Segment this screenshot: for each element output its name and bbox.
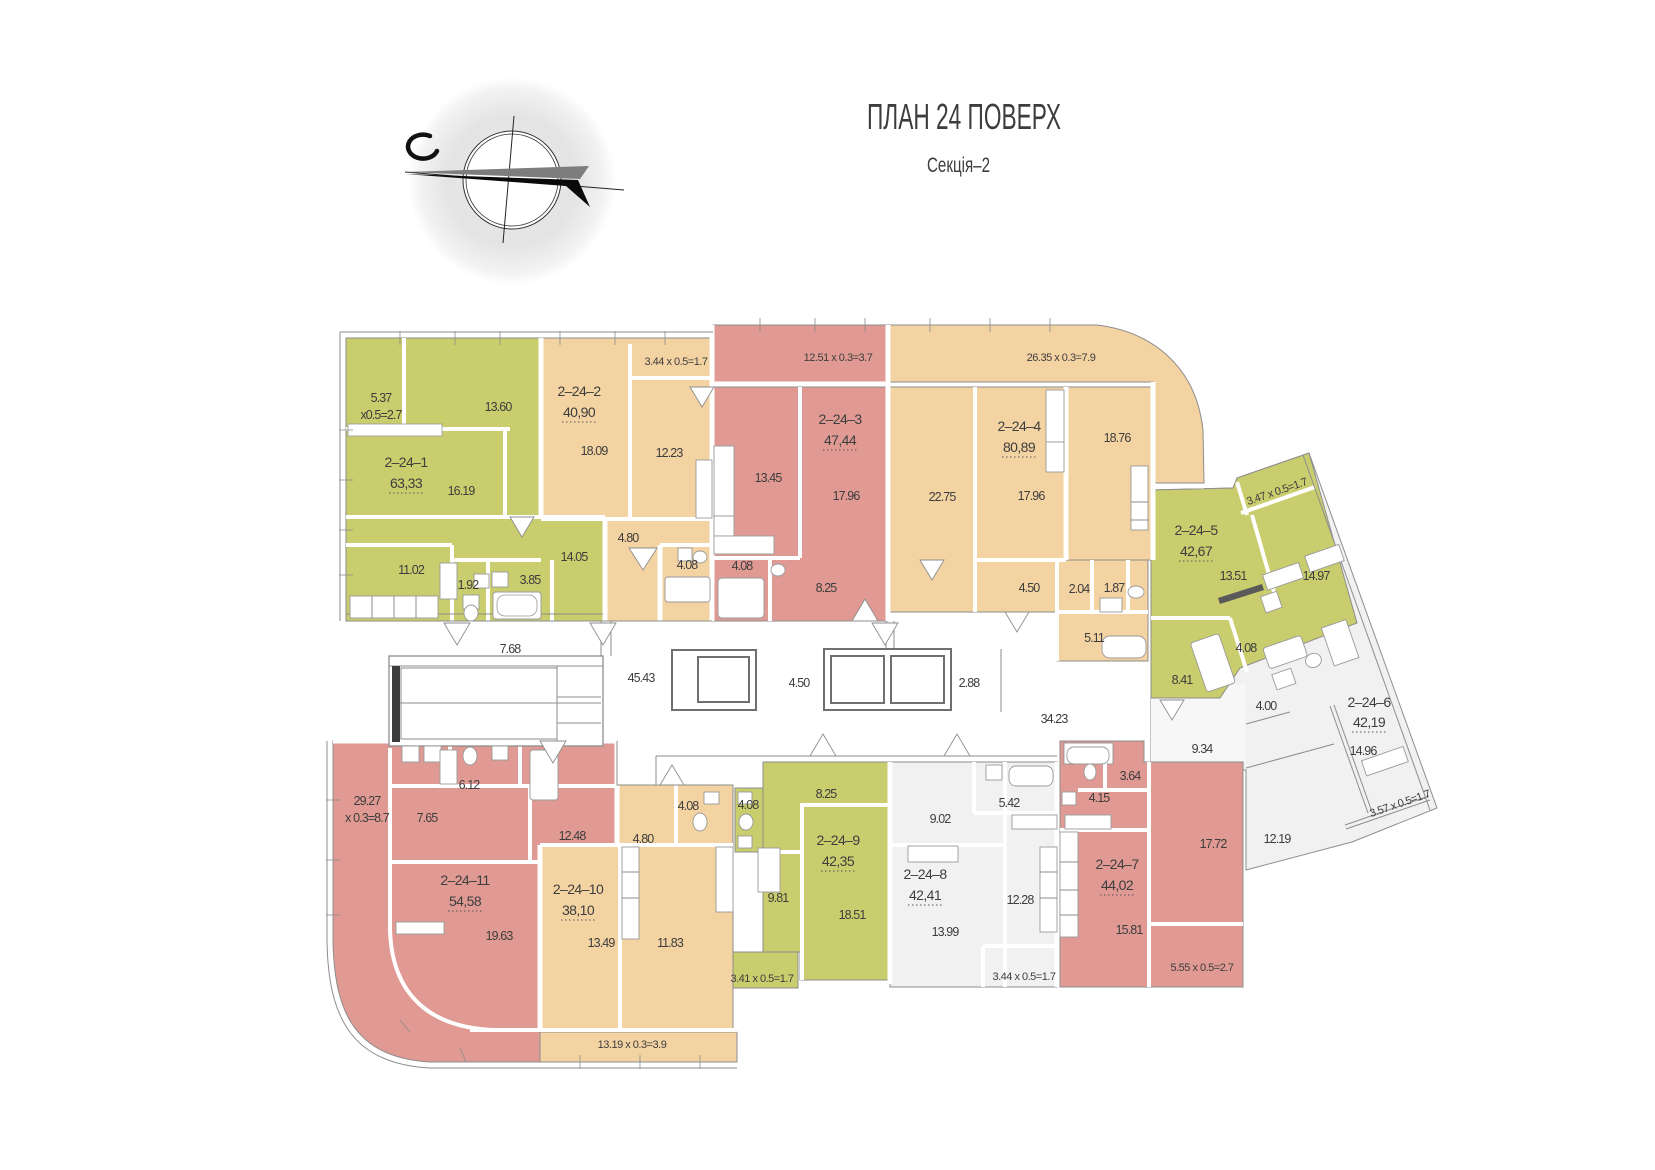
svg-text:9.81: 9.81 <box>768 891 790 905</box>
svg-text:18.51: 18.51 <box>839 908 867 922</box>
svg-text:17.72: 17.72 <box>1200 837 1228 851</box>
svg-text:2–24–8: 2–24–8 <box>903 866 947 882</box>
svg-text:х0.5=2.7: х0.5=2.7 <box>360 408 402 422</box>
svg-text:2.88: 2.88 <box>959 676 981 690</box>
svg-text:42,41: 42,41 <box>909 887 942 903</box>
svg-text:2–24–7: 2–24–7 <box>1095 856 1139 872</box>
svg-text:9.34: 9.34 <box>1192 742 1214 756</box>
svg-text:2–24–2: 2–24–2 <box>557 383 601 399</box>
svg-text:Секція–2: Секція–2 <box>927 154 990 177</box>
svg-text:13.99: 13.99 <box>932 925 960 939</box>
svg-text:2–24–1: 2–24–1 <box>384 454 428 470</box>
svg-text:29.27: 29.27 <box>354 794 382 808</box>
svg-text:12.23: 12.23 <box>656 446 684 460</box>
svg-text:12.19: 12.19 <box>1264 832 1292 846</box>
svg-text:8.25: 8.25 <box>816 581 838 595</box>
svg-text:4.08: 4.08 <box>677 558 699 572</box>
svg-text:11.83: 11.83 <box>657 936 684 950</box>
svg-text:7.65: 7.65 <box>417 811 439 825</box>
svg-text:12.28: 12.28 <box>1007 893 1035 907</box>
svg-text:7.68: 7.68 <box>500 642 522 656</box>
svg-text:4.80: 4.80 <box>633 832 655 846</box>
svg-text:5.42: 5.42 <box>999 796 1021 810</box>
svg-text:4.08: 4.08 <box>732 559 754 573</box>
svg-text:9.02: 9.02 <box>930 812 952 826</box>
svg-text:16.19: 16.19 <box>448 484 476 498</box>
svg-text:40,90: 40,90 <box>563 404 596 420</box>
svg-text:12.51 х 0.3=3.7: 12.51 х 0.3=3.7 <box>804 352 873 364</box>
svg-text:11.02: 11.02 <box>398 563 425 577</box>
svg-text:ПЛАН 24 ПОВЕРХ: ПЛАН 24 ПОВЕРХ <box>867 96 1061 137</box>
svg-text:18.09: 18.09 <box>581 444 609 458</box>
svg-text:5.55 х 0.5=2.7: 5.55 х 0.5=2.7 <box>1170 962 1233 974</box>
svg-text:19.63: 19.63 <box>486 929 514 943</box>
svg-text:3.41 х 0.5=1.7: 3.41 х 0.5=1.7 <box>730 973 793 985</box>
svg-text:18.76: 18.76 <box>1104 431 1132 445</box>
svg-text:22.75: 22.75 <box>929 490 957 504</box>
svg-text:5.11: 5.11 <box>1084 631 1105 645</box>
svg-text:14.97: 14.97 <box>1303 569 1331 583</box>
svg-text:54,58: 54,58 <box>449 893 482 909</box>
svg-text:38,10: 38,10 <box>562 902 595 918</box>
svg-text:12.48: 12.48 <box>559 829 587 843</box>
svg-text:42,35: 42,35 <box>822 853 855 869</box>
svg-text:4.50: 4.50 <box>1019 581 1041 595</box>
svg-text:1.92: 1.92 <box>458 578 480 592</box>
svg-text:8.41: 8.41 <box>1172 673 1194 687</box>
svg-text:3.44 х 0.5=1.7: 3.44 х 0.5=1.7 <box>644 356 707 368</box>
svg-text:2–24–9: 2–24–9 <box>816 832 860 848</box>
svg-text:4.08: 4.08 <box>1236 641 1258 655</box>
svg-text:2–24–6: 2–24–6 <box>1347 694 1391 710</box>
svg-text:8.25: 8.25 <box>816 787 838 801</box>
svg-text:2.04: 2.04 <box>1069 582 1091 596</box>
svg-text:4.80: 4.80 <box>618 531 640 545</box>
svg-text:45.43: 45.43 <box>628 671 656 685</box>
svg-text:13.19 х 0.3=3.9: 13.19 х 0.3=3.9 <box>598 1039 667 1051</box>
svg-text:4.50: 4.50 <box>789 676 811 690</box>
svg-text:3.85: 3.85 <box>520 573 542 587</box>
svg-text:2–24–11: 2–24–11 <box>440 872 490 888</box>
svg-text:13.60: 13.60 <box>485 400 513 414</box>
svg-text:44,02: 44,02 <box>1101 877 1134 893</box>
svg-text:34.23: 34.23 <box>1041 712 1069 726</box>
svg-text:26.35 х 0.3=7.9: 26.35 х 0.3=7.9 <box>1027 352 1096 364</box>
svg-text:4.08: 4.08 <box>738 798 760 812</box>
svg-text:13.49: 13.49 <box>588 936 616 950</box>
svg-text:2–24–5: 2–24–5 <box>1174 522 1218 538</box>
svg-text:13.45: 13.45 <box>755 471 783 485</box>
svg-text:14.96: 14.96 <box>1350 744 1378 758</box>
svg-text:42,67: 42,67 <box>1180 543 1213 559</box>
svg-text:47,44: 47,44 <box>824 432 857 448</box>
svg-text:15.81: 15.81 <box>1116 923 1144 937</box>
svg-text:80,89: 80,89 <box>1003 439 1036 455</box>
svg-text:17.96: 17.96 <box>1018 489 1046 503</box>
svg-text:63,33: 63,33 <box>390 475 423 491</box>
svg-text:4.00: 4.00 <box>1256 699 1278 713</box>
svg-text:2–24–4: 2–24–4 <box>997 418 1041 434</box>
svg-text:13.51: 13.51 <box>1220 569 1248 583</box>
svg-text:2–24–10: 2–24–10 <box>553 881 604 897</box>
svg-text:5.37: 5.37 <box>371 391 393 405</box>
svg-text:3.64: 3.64 <box>1120 769 1142 783</box>
svg-text:2–24–3: 2–24–3 <box>818 411 862 427</box>
svg-text:42,19: 42,19 <box>1353 714 1386 730</box>
svg-text:14.05: 14.05 <box>561 550 589 564</box>
svg-text:17.96: 17.96 <box>833 489 861 503</box>
svg-text:3.44 х 0.5=1.7: 3.44 х 0.5=1.7 <box>992 971 1055 983</box>
svg-text:1.87: 1.87 <box>1104 581 1126 595</box>
svg-text:4.15: 4.15 <box>1089 791 1111 805</box>
svg-text:4.08: 4.08 <box>678 799 700 813</box>
svg-text:х 0.3=8.7: х 0.3=8.7 <box>345 811 390 825</box>
svg-text:6.12: 6.12 <box>459 778 481 792</box>
